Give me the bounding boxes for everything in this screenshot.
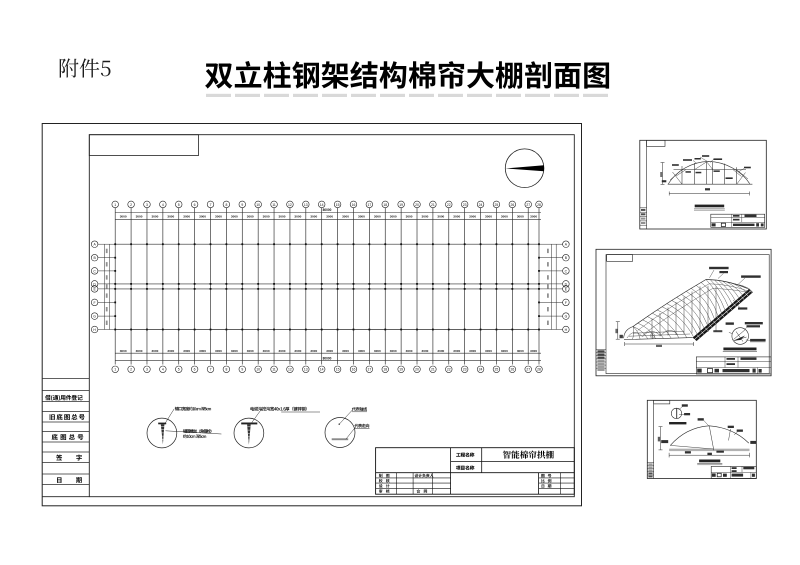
svg-text:3000: 3000 bbox=[358, 214, 365, 218]
svg-text:80000: 80000 bbox=[323, 208, 332, 212]
svg-text:7: 7 bbox=[210, 368, 212, 372]
svg-text:7: 7 bbox=[210, 203, 212, 207]
svg-text:3000: 3000 bbox=[199, 214, 206, 218]
svg-text:25: 25 bbox=[495, 203, 499, 207]
svg-text:3000: 3000 bbox=[231, 214, 238, 218]
svg-text:3000: 3000 bbox=[485, 349, 492, 353]
svg-text:17: 17 bbox=[367, 368, 371, 372]
svg-text:10: 10 bbox=[256, 203, 260, 207]
svg-text:26: 26 bbox=[510, 203, 514, 207]
svg-text:3000: 3000 bbox=[120, 349, 127, 353]
svg-text:8: 8 bbox=[225, 368, 227, 372]
svg-text:3000: 3000 bbox=[215, 349, 222, 353]
svg-text:3000: 3000 bbox=[263, 349, 270, 353]
svg-text:27: 27 bbox=[526, 368, 530, 372]
svg-text:3000: 3000 bbox=[530, 349, 537, 353]
svg-text:22: 22 bbox=[447, 368, 451, 372]
svg-text:16: 16 bbox=[352, 203, 356, 207]
svg-text:3000: 3000 bbox=[247, 349, 254, 353]
svg-text:3: 3 bbox=[146, 368, 148, 372]
svg-text:3000: 3000 bbox=[406, 214, 413, 218]
svg-text:3000: 3000 bbox=[136, 349, 143, 353]
svg-text:17: 17 bbox=[367, 203, 371, 207]
svg-text:3000: 3000 bbox=[501, 214, 508, 218]
svg-text:3: 3 bbox=[146, 203, 148, 207]
svg-text:3000: 3000 bbox=[247, 214, 254, 218]
svg-text:1: 1 bbox=[114, 203, 116, 207]
svg-text:F: F bbox=[565, 301, 567, 305]
svg-text:3000: 3000 bbox=[501, 349, 508, 353]
svg-text:20: 20 bbox=[415, 368, 419, 372]
svg-text:15: 15 bbox=[336, 203, 340, 207]
svg-text:26: 26 bbox=[510, 368, 514, 372]
svg-text:3000: 3000 bbox=[342, 349, 349, 353]
svg-text:3000: 3000 bbox=[390, 214, 397, 218]
svg-text:21: 21 bbox=[431, 203, 435, 207]
svg-text:8: 8 bbox=[225, 203, 227, 207]
svg-text:3000: 3000 bbox=[199, 349, 206, 353]
svg-text:3000: 3000 bbox=[358, 349, 365, 353]
svg-text:5: 5 bbox=[178, 368, 180, 372]
svg-text:28: 28 bbox=[537, 368, 541, 372]
svg-text:3000: 3000 bbox=[374, 349, 381, 353]
svg-text:3000: 3000 bbox=[390, 349, 397, 353]
svg-text:3000: 3000 bbox=[167, 349, 174, 353]
svg-text:F: F bbox=[94, 301, 96, 305]
svg-text:3000: 3000 bbox=[279, 214, 286, 218]
svg-text:G: G bbox=[93, 315, 96, 319]
svg-text:3000: 3000 bbox=[406, 349, 413, 353]
svg-text:3000: 3000 bbox=[310, 214, 317, 218]
svg-text:3000: 3000 bbox=[485, 214, 492, 218]
svg-text:16: 16 bbox=[352, 368, 356, 372]
svg-text:3000: 3000 bbox=[294, 349, 301, 353]
svg-text:3000: 3000 bbox=[469, 214, 476, 218]
svg-text:5: 5 bbox=[178, 203, 180, 207]
svg-text:3000: 3000 bbox=[263, 214, 270, 218]
svg-text:3000: 3000 bbox=[151, 214, 158, 218]
svg-text:3000: 3000 bbox=[422, 214, 429, 218]
svg-text:9: 9 bbox=[241, 368, 243, 372]
svg-text:6: 6 bbox=[194, 368, 196, 372]
svg-text:3000: 3000 bbox=[294, 214, 301, 218]
svg-text:18: 18 bbox=[383, 203, 387, 207]
svg-text:2: 2 bbox=[130, 203, 132, 207]
svg-text:23: 23 bbox=[463, 368, 467, 372]
svg-text:3000: 3000 bbox=[453, 349, 460, 353]
svg-text:6: 6 bbox=[194, 203, 196, 207]
svg-text:22: 22 bbox=[447, 203, 451, 207]
svg-text:3000: 3000 bbox=[183, 349, 190, 353]
svg-text:3000: 3000 bbox=[183, 214, 190, 218]
svg-text:3000: 3000 bbox=[167, 214, 174, 218]
svg-text:3000: 3000 bbox=[530, 214, 537, 218]
svg-text:3000: 3000 bbox=[422, 349, 429, 353]
svg-text:1: 1 bbox=[114, 368, 116, 372]
svg-text:G: G bbox=[565, 315, 568, 319]
svg-text:3000: 3000 bbox=[517, 214, 524, 218]
svg-text:15: 15 bbox=[336, 368, 340, 372]
svg-text:3000: 3000 bbox=[437, 349, 444, 353]
svg-text:3000: 3000 bbox=[279, 349, 286, 353]
svg-text:19: 19 bbox=[399, 203, 403, 207]
svg-text:3000: 3000 bbox=[151, 349, 158, 353]
svg-text:3000: 3000 bbox=[517, 349, 524, 353]
svg-text:24: 24 bbox=[479, 203, 483, 207]
svg-text:13: 13 bbox=[304, 368, 308, 372]
svg-text:14: 14 bbox=[320, 203, 324, 207]
svg-text:2: 2 bbox=[130, 368, 132, 372]
svg-text:3000: 3000 bbox=[215, 214, 222, 218]
svg-text:13: 13 bbox=[304, 203, 308, 207]
svg-text:24: 24 bbox=[479, 368, 483, 372]
svg-text:27: 27 bbox=[526, 203, 530, 207]
svg-text:3000: 3000 bbox=[120, 214, 127, 218]
svg-text:14: 14 bbox=[320, 368, 324, 372]
svg-text:4: 4 bbox=[162, 368, 164, 372]
svg-text:11: 11 bbox=[272, 203, 276, 207]
svg-text:19: 19 bbox=[399, 368, 403, 372]
svg-text:12: 12 bbox=[288, 368, 292, 372]
svg-text:11: 11 bbox=[272, 368, 276, 372]
svg-text:3000: 3000 bbox=[469, 349, 476, 353]
svg-text:4: 4 bbox=[162, 203, 164, 207]
svg-text:3000: 3000 bbox=[342, 214, 349, 218]
svg-text:3000: 3000 bbox=[136, 214, 143, 218]
svg-text:3000: 3000 bbox=[453, 214, 460, 218]
svg-text:3000: 3000 bbox=[326, 214, 333, 218]
svg-text:28: 28 bbox=[537, 203, 541, 207]
svg-text:80000: 80000 bbox=[323, 356, 332, 360]
svg-text:3000: 3000 bbox=[374, 214, 381, 218]
svg-text:12: 12 bbox=[288, 203, 292, 207]
svg-text:23: 23 bbox=[463, 203, 467, 207]
svg-text:20: 20 bbox=[415, 203, 419, 207]
svg-text:18: 18 bbox=[383, 368, 387, 372]
svg-text:9: 9 bbox=[241, 203, 243, 207]
svg-text:25: 25 bbox=[495, 368, 499, 372]
svg-text:3000: 3000 bbox=[326, 349, 333, 353]
svg-text:3000: 3000 bbox=[310, 349, 317, 353]
svg-text:3000: 3000 bbox=[231, 349, 238, 353]
svg-text:3000: 3000 bbox=[437, 214, 444, 218]
svg-text:10: 10 bbox=[256, 368, 260, 372]
svg-text:21: 21 bbox=[431, 368, 435, 372]
